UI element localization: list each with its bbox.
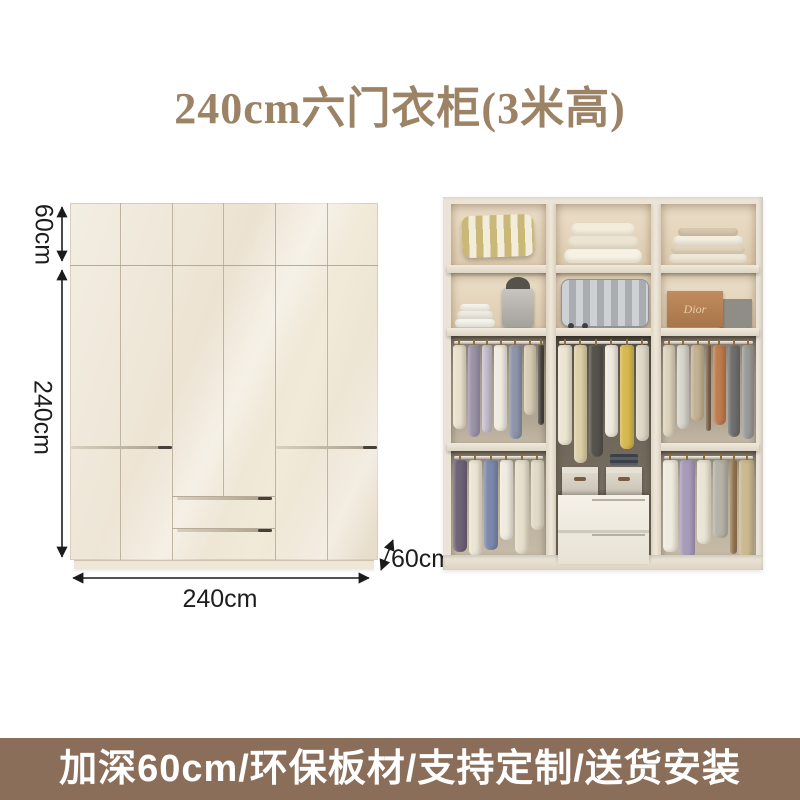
clothing-item	[494, 345, 507, 431]
body-height-label: 240cm	[28, 368, 57, 468]
hanging-rod	[454, 456, 543, 459]
clothing-item	[663, 345, 675, 437]
door-handle	[158, 446, 172, 449]
clothing-item	[574, 345, 588, 463]
shelf-cell-duvets	[556, 204, 651, 265]
shelf-board	[447, 265, 759, 273]
gray-storage-box	[720, 299, 752, 327]
width-label: 240cm	[70, 585, 370, 614]
clothing-item	[509, 345, 522, 439]
blanket-layer	[673, 236, 743, 245]
aluminum-suitcase	[561, 279, 649, 327]
blanket-layer	[669, 254, 747, 263]
clothing-item	[605, 345, 619, 437]
hanging-rod	[664, 456, 753, 459]
door-seam	[275, 203, 276, 560]
top-height-label: 60cm	[29, 200, 58, 270]
shelf-board	[447, 443, 552, 451]
hanging-clothes	[558, 345, 649, 463]
folded-duvet-stack	[564, 223, 642, 263]
shelf-board	[447, 328, 759, 336]
clothing-item	[524, 345, 537, 415]
middle-tall-cell	[556, 336, 651, 555]
light-sheen	[70, 203, 378, 560]
shelf-cell-pillow	[451, 204, 546, 265]
clothing-item	[730, 460, 737, 554]
striped-pillow	[461, 214, 534, 258]
towel-layer	[457, 311, 493, 319]
interior-drawer-unit	[558, 495, 649, 564]
wardrobe-front-diagram	[70, 203, 378, 560]
hanging-rod	[559, 341, 648, 344]
dior-box-label: Dior	[684, 302, 707, 317]
clothing-item	[469, 460, 483, 556]
clothing-item	[680, 460, 695, 558]
door-seam	[120, 203, 121, 560]
drawer-pull	[592, 499, 645, 501]
wardrobe-interior-photo: Dior	[443, 197, 763, 570]
garment-steamer	[502, 287, 534, 327]
duvet-layer	[567, 236, 639, 249]
clothing-item	[728, 345, 740, 437]
door-handle-groove	[71, 446, 172, 449]
drawer-handle-groove	[177, 529, 272, 532]
shelf-cell-blankets	[661, 204, 756, 265]
hanging-cell	[451, 451, 546, 555]
shelf-cell-boxes: Dior	[661, 273, 756, 328]
blanket-layer	[678, 228, 738, 236]
folded-towels	[455, 304, 495, 327]
dior-box: Dior	[667, 291, 723, 327]
clothing-item	[484, 460, 498, 550]
clothing-item	[691, 345, 703, 421]
hanging-clothes	[663, 345, 754, 439]
clothing-item	[500, 460, 514, 540]
hanging-cell	[451, 336, 546, 443]
clothing-item	[515, 460, 529, 554]
hanging-clothes	[453, 345, 544, 439]
top-cabinet-seam	[70, 265, 378, 266]
shelf-cell-suitcase	[556, 273, 651, 328]
clothing-item	[713, 460, 728, 538]
hanging-cell	[661, 336, 756, 443]
door-seam	[327, 203, 328, 560]
clothing-item	[468, 345, 481, 437]
clothing-item	[663, 460, 678, 552]
blanket-layer	[671, 245, 745, 254]
door-handle	[363, 446, 377, 449]
clothing-item	[453, 345, 466, 429]
door-handle-groove	[276, 446, 377, 449]
clothing-item	[742, 345, 754, 439]
product-image: 240cm六门衣柜(3米高) 60cm 240cm 240cm 60cm	[0, 0, 800, 800]
shelf-cell-appliance	[451, 273, 546, 328]
clothing-item	[697, 460, 712, 544]
clothing-item	[453, 460, 467, 552]
clothing-item	[589, 345, 603, 457]
drawer-handle-groove	[177, 497, 272, 500]
hanging-clothes	[663, 460, 754, 558]
clothing-item	[558, 345, 572, 445]
promo-banner: 加深60cm/环保板材/支持定制/送货安装	[0, 738, 800, 800]
duvet-layer	[564, 249, 642, 263]
clothing-item	[538, 345, 544, 425]
drawer-split	[558, 530, 649, 532]
towel-layer	[455, 319, 495, 327]
duvet-layer	[571, 223, 635, 236]
drawer-handle	[258, 529, 272, 532]
page-title: 240cm六门衣柜(3米高)	[0, 72, 800, 136]
clothing-item	[713, 345, 725, 425]
wardrobe-plinth	[74, 560, 374, 569]
vertical-divider-panel	[651, 204, 661, 555]
clothing-item	[620, 345, 634, 449]
towel-layer	[460, 304, 490, 311]
hanging-cell	[661, 451, 756, 555]
hanging-clothes	[453, 460, 544, 556]
folded-dark-clothes	[610, 454, 638, 465]
door-seam	[223, 203, 224, 496]
clothing-item	[706, 345, 712, 431]
clothing-item	[677, 345, 689, 429]
clothing-item	[636, 345, 650, 441]
door-seam	[172, 203, 173, 560]
clothing-item	[482, 345, 492, 433]
folded-blanket-stack	[669, 228, 747, 263]
clothing-item	[739, 460, 754, 558]
clothing-item	[531, 460, 545, 530]
shelf-board	[655, 443, 759, 451]
vertical-divider-panel	[546, 204, 556, 555]
drawer-handle	[258, 497, 272, 500]
promo-banner-text: 加深60cm/环保板材/支持定制/送货安装	[0, 738, 800, 800]
drawer-pull	[592, 534, 645, 536]
